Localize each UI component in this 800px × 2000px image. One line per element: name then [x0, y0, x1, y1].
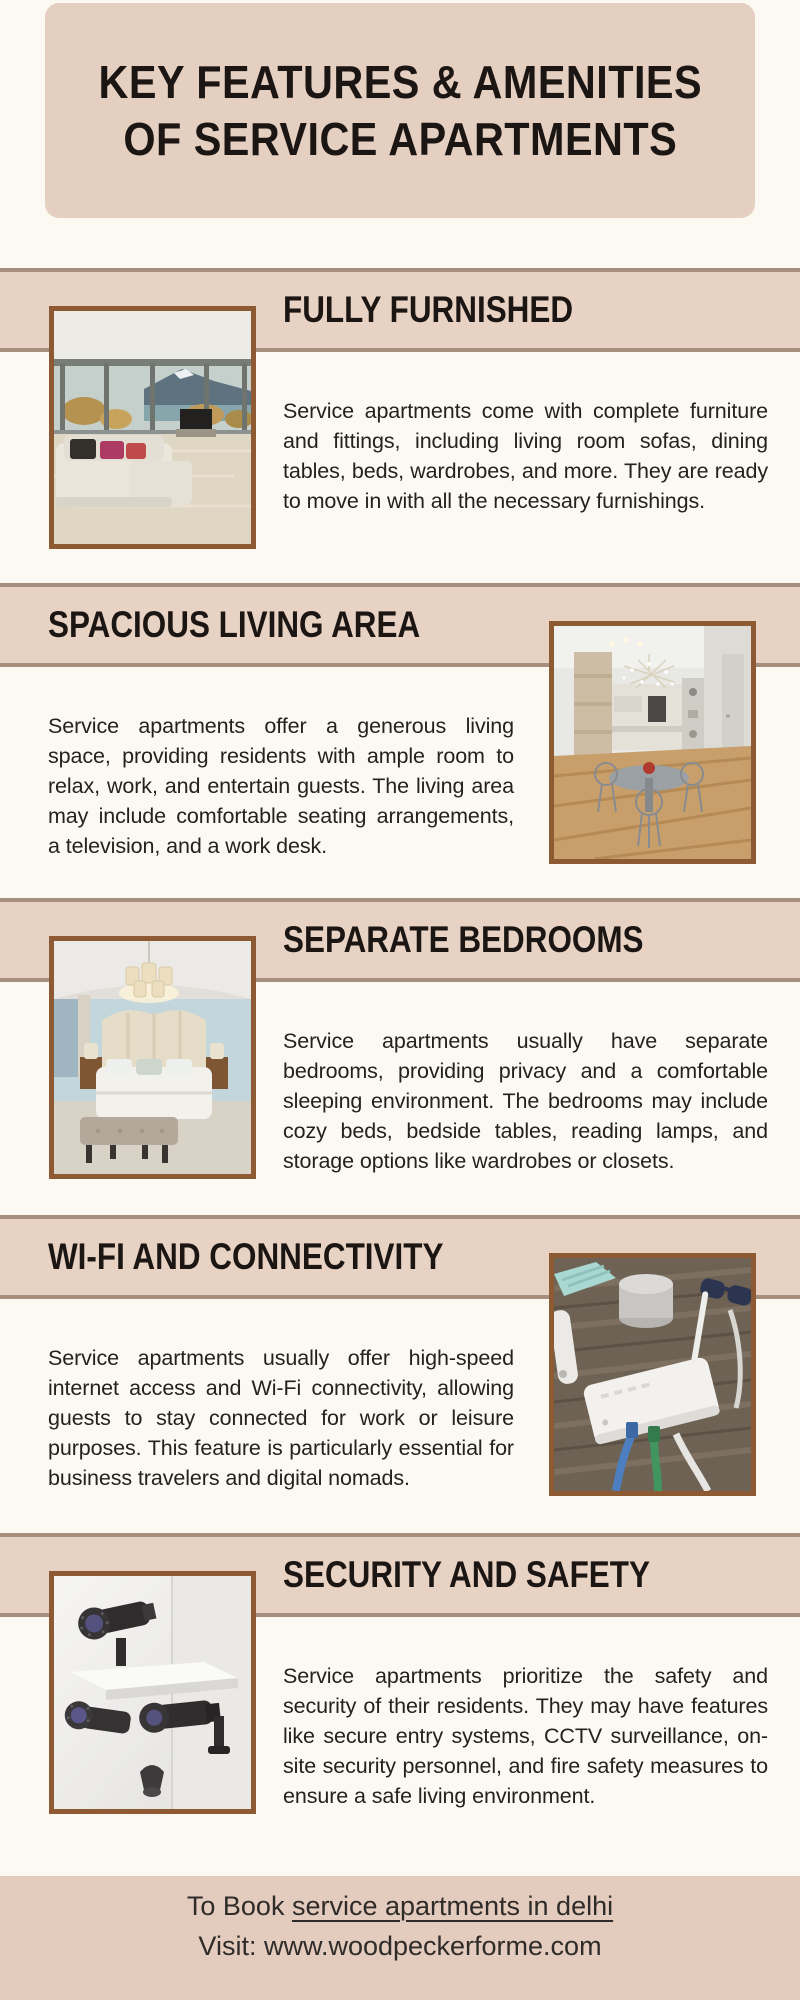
header-panel: KEY FEATURES & AMENITIES OF SERVICE APAR…	[45, 3, 755, 218]
living-room-illustration	[54, 311, 251, 544]
footer-panel: To Book service apartments in delhi Visi…	[0, 1876, 800, 2000]
bedroom-photo	[49, 936, 256, 1179]
booking-text: To Book	[187, 1891, 292, 1921]
dining-kitchen-illustration	[554, 626, 751, 859]
section-spacious-living-area: SPACIOUS LIVING AREA	[0, 583, 800, 900]
section-body: Service apartments offer a generous livi…	[48, 711, 514, 861]
section-body: Service apartments usually have separate…	[283, 1026, 768, 1176]
dining-kitchen-photo	[549, 621, 756, 864]
section-title: SEPARATE BEDROOMS	[283, 898, 707, 982]
cctv-cameras-photo	[49, 1571, 256, 1814]
section-title: SECURITY AND SAFETY	[283, 1533, 715, 1617]
section-wifi-connectivity: WI-FI AND CONNECTIVITY	[0, 1215, 800, 1532]
bedroom-illustration	[54, 941, 251, 1174]
wifi-router-photo	[549, 1253, 756, 1496]
section-title: SPACIOUS LIVING AREA	[48, 583, 486, 667]
section-fully-furnished: FULLY FURNISHED	[0, 268, 800, 585]
infographic-page: KEY FEATURES & AMENITIES OF SERVICE APAR…	[0, 0, 800, 2000]
page-title-line1: KEY FEATURES & AMENITIES	[98, 54, 702, 111]
wifi-router-illustration	[554, 1258, 751, 1491]
section-title: WI-FI AND CONNECTIVITY	[48, 1215, 513, 1299]
page-title-line2: OF SERVICE APARTMENTS	[98, 111, 702, 168]
section-security-safety: SECURITY AND SAFETY	[0, 1533, 800, 1850]
website-url: Visit: www.woodpeckerforme.com	[0, 1932, 800, 1960]
booking-link[interactable]: service apartments in delhi	[292, 1891, 613, 1921]
section-body: Service apartments come with complete fu…	[283, 396, 768, 516]
section-title: FULLY FURNISHED	[283, 268, 624, 352]
cctv-cameras-illustration	[54, 1576, 251, 1809]
footer-booking-line: To Book service apartments in delhi	[0, 1892, 800, 1920]
section-separate-bedrooms: SEPARATE BEDROOMS	[0, 898, 800, 1215]
section-body: Service apartments prioritize the safety…	[283, 1661, 768, 1811]
page-title: KEY FEATURES & AMENITIES OF SERVICE APAR…	[98, 54, 702, 168]
section-body: Service apartments usually offer high-sp…	[48, 1343, 514, 1493]
living-room-photo	[49, 306, 256, 549]
